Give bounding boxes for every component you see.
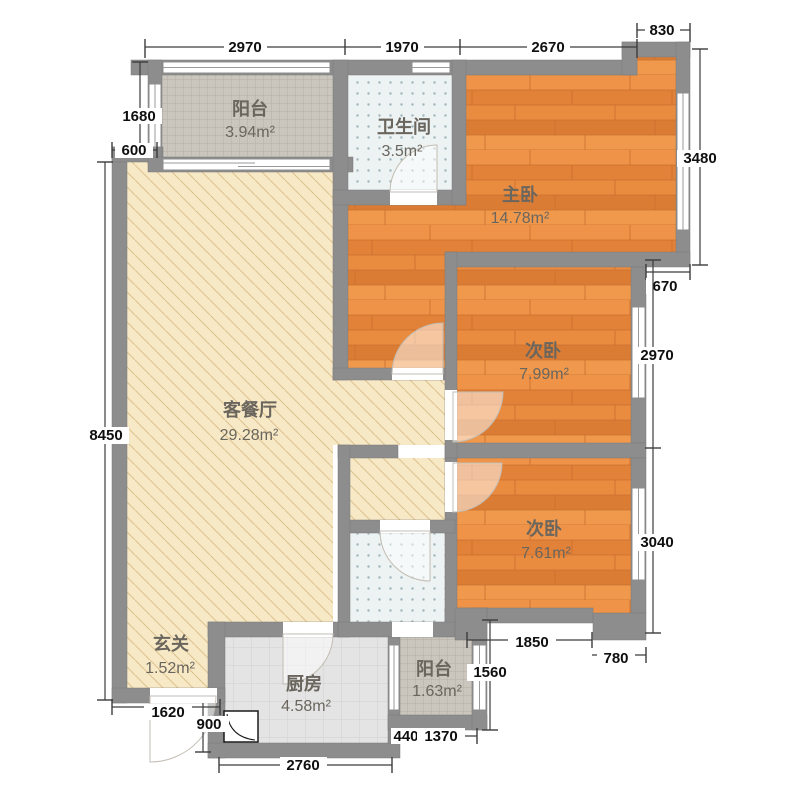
label-entry-area: 1.52m²	[145, 660, 195, 677]
dim-bottom-1850: 1850	[515, 634, 548, 651]
room-living-floor	[127, 162, 333, 688]
label-entry-name: 玄关	[153, 633, 189, 654]
label-bed2-name: 次卧	[525, 340, 561, 361]
dim-top-2970: 2970	[228, 39, 261, 56]
label-bed2-area: 7.99m²	[519, 366, 569, 383]
dim-bottom-440: 440	[393, 728, 418, 745]
dim-left-8450: 8450	[89, 427, 122, 444]
label-bed3-name: 次卧	[526, 518, 562, 539]
dim-top-2670: 2670	[531, 39, 564, 56]
dim-right-670: 670	[652, 278, 677, 295]
label-balcony-top-area: 3.94m²	[225, 124, 275, 141]
dim-top-830: 830	[649, 22, 674, 39]
door-opening-bath-balcony	[392, 622, 433, 637]
wall-bed3-bottom-step	[593, 613, 646, 640]
label-balcony-bottom-area: 1.63m²	[412, 683, 462, 700]
dim-right-3040: 3040	[640, 534, 673, 551]
dim-right-2970: 2970	[640, 347, 673, 364]
label-balcony-bottom-name: 阳台	[416, 658, 452, 679]
label-master-area: 14.78m²	[491, 210, 550, 227]
wall-bed2-bed3	[445, 443, 646, 458]
dim-right-3480: 3480	[683, 150, 716, 167]
sliding-door-balcony-living	[163, 159, 330, 170]
label-master-name: 主卧	[502, 184, 538, 205]
kitchen-sink-icon	[224, 711, 258, 742]
label-bed3-area: 7.61m²	[521, 545, 571, 562]
dim-bottom-1370: 1370	[424, 728, 457, 745]
label-kitchen-name: 厨房	[286, 673, 322, 694]
label-living-area: 29.28m²	[220, 427, 279, 444]
dim-bottom-1560: 1560	[473, 664, 506, 681]
dim-bottom-2760: 2760	[286, 757, 319, 774]
dim-bottom-1620: 1620	[151, 704, 184, 721]
floorplan-svg: 2970 1970 2670 830 1680 600 8450 3480	[0, 0, 800, 800]
dim-bottom-780: 780	[603, 650, 628, 667]
hallway-floor	[333, 380, 445, 445]
dim-top-1970: 1970	[385, 39, 418, 56]
wall-kitchen-bottom	[208, 743, 400, 758]
label-kitchen-area: 4.58m²	[281, 698, 331, 715]
wall-bath-bottom-left	[338, 445, 350, 637]
wall-balcony-bed3-joint	[455, 608, 487, 640]
label-bath-top-name: 卫生间	[377, 116, 431, 137]
dim-left-600: 600	[121, 142, 146, 159]
label-living-name: 客餐厅	[223, 399, 277, 420]
label-balcony-top-name: 阳台	[232, 98, 268, 119]
wall-bath-master	[452, 60, 466, 205]
window-bath-top	[412, 62, 450, 73]
dim-bottom-900: 900	[196, 716, 221, 733]
wall-left-living	[112, 147, 127, 703]
hallway-lower-floor	[350, 458, 445, 520]
wall-living-bath-master	[333, 60, 348, 380]
window-balcony-top-railing	[163, 62, 330, 73]
floorplan-canvas: 2970 1970 2670 830 1680 600 8450 3480	[0, 0, 800, 800]
label-bath-top-area: 3.5m²	[382, 143, 424, 160]
dim-left-1680: 1680	[122, 108, 155, 125]
fixtures	[224, 711, 258, 742]
window-balcony-bottom-left	[389, 645, 399, 710]
